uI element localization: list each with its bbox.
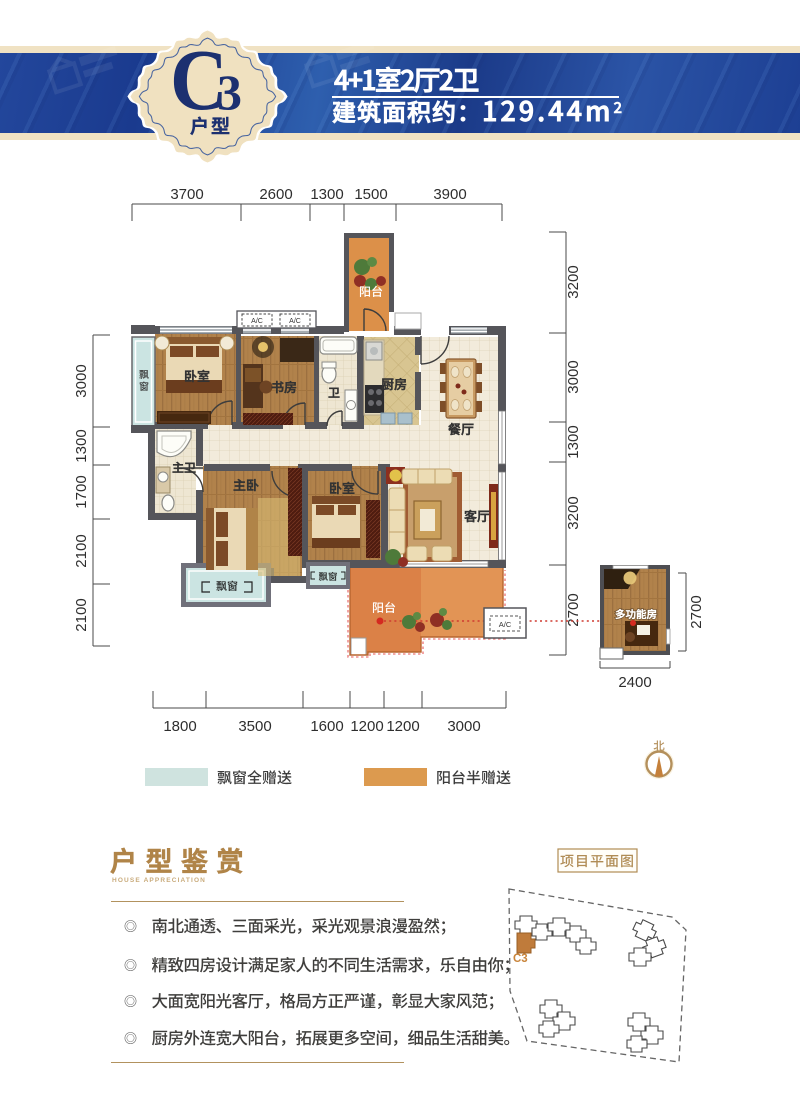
svg-text:3900: 3900 <box>433 186 466 203</box>
svg-text:3200: 3200 <box>565 265 582 298</box>
svg-text:3500: 3500 <box>238 718 271 735</box>
svg-text:阳台: 阳台 <box>359 283 383 300</box>
svg-text:A/C: A/C <box>289 318 301 325</box>
svg-text:厨房: 厨房 <box>381 374 407 393</box>
svg-text:书房: 书房 <box>271 377 297 396</box>
svg-text:项目平面图: 项目平面图 <box>560 851 635 871</box>
svg-text:窗: 窗 <box>139 378 149 393</box>
svg-text:阳台: 阳台 <box>372 599 396 616</box>
svg-text:飘窗全赠送: 飘窗全赠送 <box>217 767 292 788</box>
svg-text:主卫: 主卫 <box>172 459 196 476</box>
svg-text:1800: 1800 <box>163 718 196 735</box>
svg-text:卧室: 卧室 <box>329 478 355 497</box>
svg-text:飘窗: 飘窗 <box>318 569 337 583</box>
svg-text:阳台半赠送: 阳台半赠送 <box>436 767 511 788</box>
svg-text:1200: 1200 <box>386 718 419 735</box>
svg-text:A/C: A/C <box>251 318 263 325</box>
svg-text:2100: 2100 <box>73 598 90 631</box>
svg-text:A/C: A/C <box>499 620 512 629</box>
svg-text:1300: 1300 <box>565 425 582 458</box>
svg-text:1200: 1200 <box>350 718 383 735</box>
svg-text:主卧: 主卧 <box>233 475 259 494</box>
svg-text:2600: 2600 <box>259 186 292 203</box>
svg-text:3700: 3700 <box>170 186 203 203</box>
svg-text:1300: 1300 <box>310 186 343 203</box>
svg-text:3000: 3000 <box>565 360 582 393</box>
svg-text:1300: 1300 <box>73 429 90 462</box>
svg-text:2700: 2700 <box>688 595 705 628</box>
svg-text:卧室: 卧室 <box>184 366 210 385</box>
svg-text:客厅: 客厅 <box>463 506 490 525</box>
svg-text:C3: C3 <box>513 953 528 965</box>
svg-text:飘窗: 飘窗 <box>216 578 238 594</box>
svg-text:2400: 2400 <box>618 674 651 691</box>
svg-text:1500: 1500 <box>354 186 387 203</box>
svg-text:3000: 3000 <box>447 718 480 735</box>
svg-text:卫: 卫 <box>328 384 340 401</box>
svg-text:2100: 2100 <box>73 534 90 567</box>
svg-text:餐厅: 餐厅 <box>447 419 474 438</box>
svg-text:1600: 1600 <box>310 718 343 735</box>
svg-text:3000: 3000 <box>73 364 90 397</box>
svg-text:1700: 1700 <box>73 475 90 508</box>
svg-text:3200: 3200 <box>565 496 582 529</box>
svg-text:北: 北 <box>653 738 665 754</box>
svg-text:多功能房: 多功能房 <box>615 607 657 622</box>
